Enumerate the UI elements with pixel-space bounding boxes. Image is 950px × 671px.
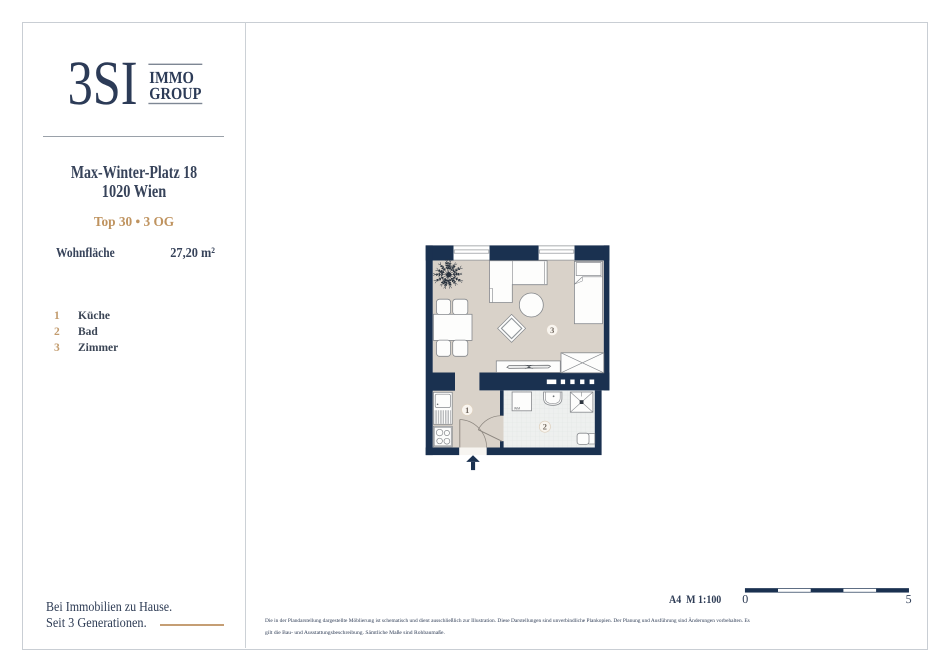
svg-text:0: 0 [742,592,748,606]
svg-text:3SI: 3SI [68,48,138,118]
svg-text:WM: WM [514,406,520,410]
svg-text:GROUP: GROUP [149,84,201,103]
svg-text:3: 3 [550,326,554,335]
svg-text:1: 1 [465,406,469,415]
svg-text:2: 2 [543,423,547,432]
svg-text:5: 5 [906,592,912,606]
